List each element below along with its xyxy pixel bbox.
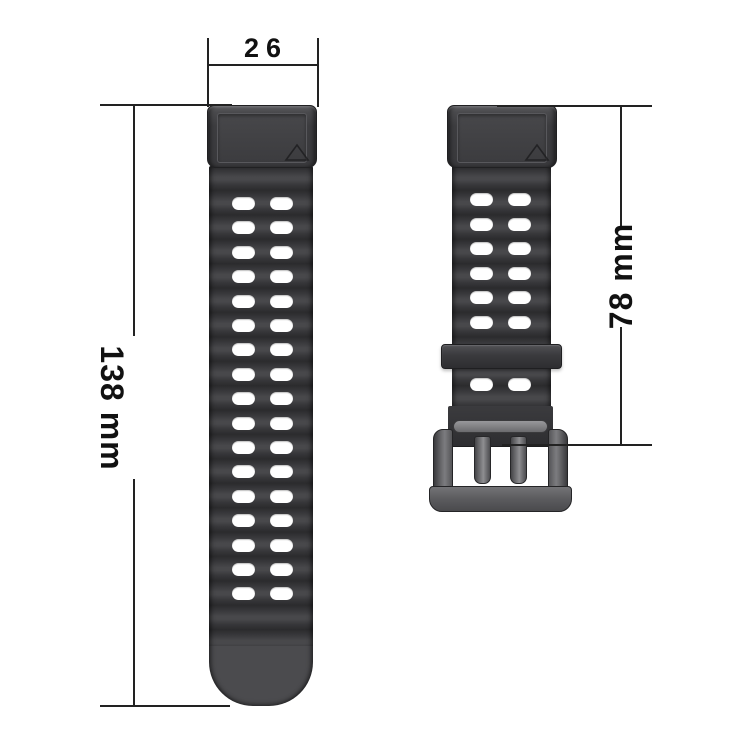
strap-hole	[232, 465, 255, 478]
strap-hole	[232, 490, 255, 503]
strap-hole	[270, 270, 293, 283]
strap-hole	[470, 193, 493, 206]
strap-hole	[470, 218, 493, 231]
strap-hole	[232, 368, 255, 381]
strap-hole	[270, 246, 293, 259]
strap-hole	[232, 246, 255, 259]
strap-hole	[270, 563, 293, 576]
strap-hole	[270, 490, 293, 503]
strap-hole	[232, 270, 255, 283]
long-strap-lug-connector	[207, 105, 317, 168]
strap-hole	[270, 539, 293, 552]
strap-hole	[270, 392, 293, 405]
strap-hole	[270, 587, 293, 600]
strap-hole	[270, 197, 293, 210]
buckle-frame-right	[548, 429, 568, 488]
short-strap-lug-connector	[447, 105, 557, 168]
strap-keeper-loop	[441, 344, 562, 369]
strap-hole	[232, 221, 255, 234]
triangle-mark-icon	[284, 143, 310, 162]
buckle-hinge-bar	[453, 420, 548, 433]
triangle-mark-icon	[524, 143, 550, 162]
short-strap-length-label: 78 mm	[605, 223, 637, 329]
strap-hole	[270, 221, 293, 234]
strap-hole	[232, 392, 255, 405]
strap-hole	[270, 368, 293, 381]
strap-hole	[270, 343, 293, 356]
short-length-line-upper	[620, 105, 622, 226]
strap-hole	[232, 587, 255, 600]
strap-hole	[270, 514, 293, 527]
long-length-tick-bottom	[100, 705, 230, 707]
strap-hole	[232, 441, 255, 454]
strap-hole	[232, 514, 255, 527]
short-length-line-lower	[620, 327, 622, 445]
strap-hole	[508, 242, 531, 255]
strap-hole	[508, 378, 531, 391]
long-strap-length-label: 138 mm	[96, 345, 128, 470]
width-dimension-line	[207, 64, 318, 66]
strap-hole	[470, 378, 493, 391]
strap-hole	[508, 193, 531, 206]
strap-hole	[232, 197, 255, 210]
strap-hole	[508, 267, 531, 280]
long-length-line-upper	[133, 104, 135, 336]
strap-hole	[232, 295, 255, 308]
strap-hole	[232, 319, 255, 332]
long-length-tick-top	[100, 104, 232, 106]
strap-hole	[232, 343, 255, 356]
strap-hole	[470, 316, 493, 329]
strap-hole	[270, 295, 293, 308]
strap-hole	[270, 441, 293, 454]
strap-hole	[470, 291, 493, 304]
strap-hole	[470, 242, 493, 255]
buckle-prong	[474, 436, 491, 484]
strap-hole	[232, 539, 255, 552]
band-width-label: 26	[207, 35, 318, 62]
short-length-tick-top	[497, 105, 652, 107]
strap-hole	[508, 316, 531, 329]
long-length-line-lower	[133, 479, 135, 706]
strap-hole	[232, 563, 255, 576]
strap-hole	[508, 291, 531, 304]
strap-hole	[270, 319, 293, 332]
strap-hole	[470, 267, 493, 280]
strap-hole	[232, 417, 255, 430]
strap-hole	[270, 465, 293, 478]
short-length-tick-bottom	[502, 444, 652, 446]
buckle-frame-left	[433, 429, 453, 488]
strap-hole	[270, 417, 293, 430]
diagram-canvas: 26 138 mm 78 mm	[0, 0, 750, 750]
short-strap-body	[452, 166, 551, 428]
buckle-frame-bottom	[429, 486, 572, 512]
long-strap-body	[209, 166, 313, 706]
strap-hole	[508, 218, 531, 231]
